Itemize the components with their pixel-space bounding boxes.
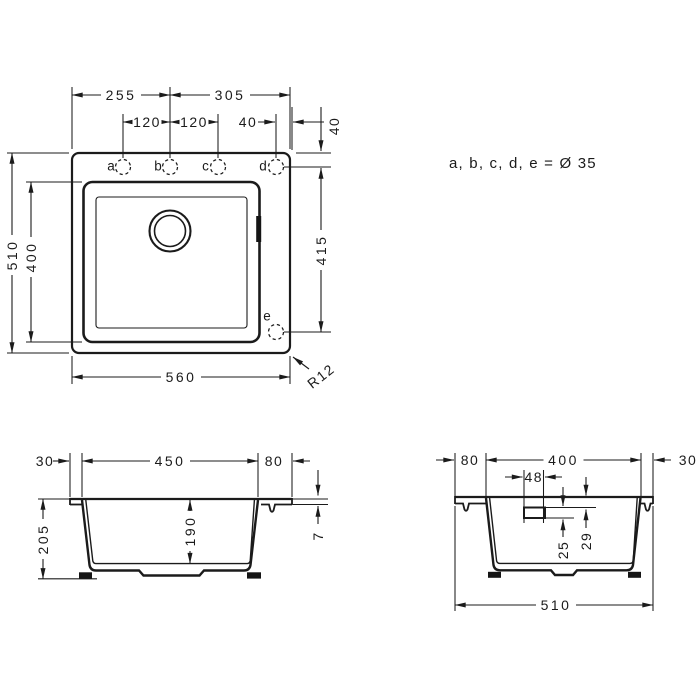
drain-outer-circle <box>150 211 191 252</box>
dim-400-group: 400 <box>23 237 39 277</box>
dim-40-vertical-group: 40 <box>326 117 342 136</box>
dim-205: 205 <box>35 524 51 555</box>
left-foot-pad <box>488 572 501 578</box>
dim-415-group: 415 <box>313 230 329 270</box>
dim-7-group: 7 <box>310 531 326 540</box>
dim-400-left: 400 <box>23 242 39 273</box>
dim-400-side: 400 <box>548 452 579 468</box>
dim-190: 190 <box>182 516 198 547</box>
underside-right-drip-groove <box>261 505 292 512</box>
dim-510-group: 510 <box>4 235 20 275</box>
overflow-opening <box>524 508 545 519</box>
tap-hole-e <box>269 325 284 340</box>
right-foot-pad <box>628 572 641 578</box>
dim-29-group: 29 <box>578 532 594 551</box>
hole-label-b: b <box>154 159 162 174</box>
side-section-dimensions: 80 400 30 48 25 29 510 <box>436 452 697 613</box>
tap-hole-c <box>211 160 226 175</box>
dim-30-front: 30 <box>36 453 55 469</box>
tap-hole-d <box>269 160 284 175</box>
dim-80-side: 80 <box>461 452 480 468</box>
top-view-sink-body <box>72 153 290 353</box>
dim-25: 25 <box>555 541 571 560</box>
dim-120-ab: 120 <box>133 114 161 130</box>
dim-415: 415 <box>313 235 329 266</box>
front-section-profile <box>70 498 292 579</box>
bowl-inner-wall <box>86 500 255 564</box>
dim-450: 450 <box>155 453 186 469</box>
sink-technical-drawing: a b c d e 25 <box>0 0 700 700</box>
dim-40-vertical: 40 <box>326 117 342 136</box>
dim-190-group: 190 <box>182 511 198 551</box>
dim-205-group: 205 <box>35 519 51 559</box>
front-section-dimensions: 30 450 80 205 190 7 <box>35 453 326 579</box>
hole-label-a: a <box>107 159 115 174</box>
tap-hole-a <box>116 160 131 175</box>
tap-hole-b <box>163 160 178 175</box>
side-section-profile <box>455 496 653 578</box>
dim-510-left: 510 <box>4 240 20 271</box>
underside-left-drip-groove <box>455 504 486 511</box>
underside-right <box>641 504 653 511</box>
hole-label-e: e <box>263 309 271 324</box>
top-view: a b c d e 25 <box>4 87 342 392</box>
dim-30-side: 30 <box>679 452 698 468</box>
dim-29: 29 <box>578 532 594 551</box>
dim-255: 255 <box>106 87 137 103</box>
right-foot-pad <box>247 572 261 578</box>
dim-120-bc: 120 <box>180 114 208 130</box>
dim-r12: R12 <box>304 360 338 391</box>
bowl-bottom-edge <box>96 197 247 328</box>
hole-label-c: c <box>202 159 209 174</box>
drain-inner-circle <box>155 216 186 247</box>
left-foot-pad <box>79 572 92 578</box>
top-view-dimensions: 255 305 120 120 40 40 415 <box>4 87 342 392</box>
side-section-view: 80 400 30 48 25 29 510 <box>436 452 697 613</box>
sink-technical-drawing-page: a b c d e 25 <box>0 0 700 700</box>
dim-25-group: 25 <box>555 541 571 560</box>
dim-48: 48 <box>525 469 544 485</box>
dim-305: 305 <box>215 87 246 103</box>
dim-40-horizontal: 40 <box>239 114 258 130</box>
dim-510-side: 510 <box>541 597 572 613</box>
top-view-extension-lines <box>7 87 331 384</box>
dim-r12-group: R12 <box>304 360 338 391</box>
hole-diameter-note: a, b, c, d, e = Ø 35 <box>449 155 597 172</box>
bowl-rim <box>84 182 260 342</box>
front-section-view: 30 450 80 205 190 7 <box>35 453 328 579</box>
dim-560: 560 <box>166 369 197 385</box>
hole-label-d: d <box>259 159 267 174</box>
dim-7: 7 <box>310 531 326 540</box>
overflow-slot-mark <box>256 216 261 242</box>
dim-80-front: 80 <box>265 453 284 469</box>
